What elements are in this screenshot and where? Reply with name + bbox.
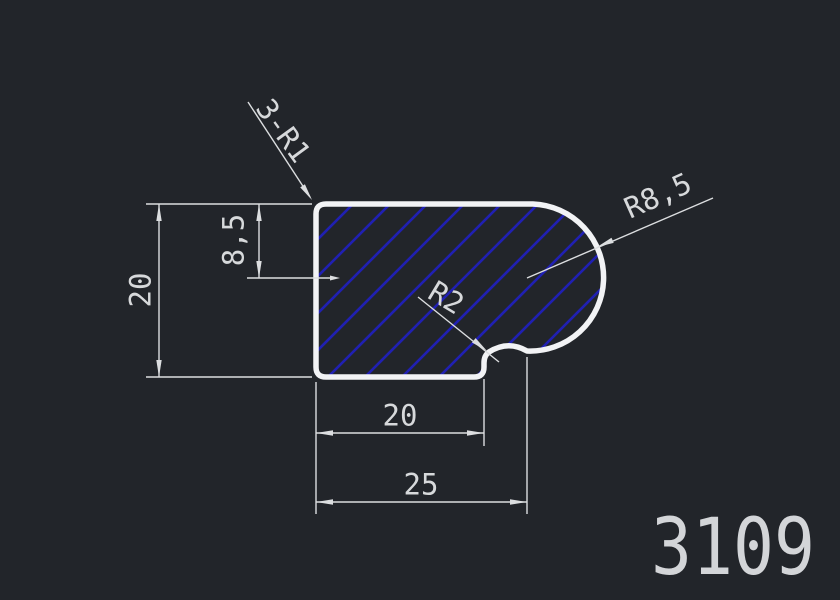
dimension-arrow (156, 204, 161, 221)
dimension-arrow (156, 360, 161, 377)
dimension-arrow (330, 276, 340, 281)
dimension-arrow (597, 238, 614, 247)
height-dim-label: 20 (124, 273, 158, 308)
drawing-svg: 20 8,5 3-R1 R8,5 R2 20 25 3109 (0, 0, 840, 600)
top-offset-dim-label: 8,5 (217, 214, 251, 266)
dimension-arrow (510, 499, 527, 504)
section-hatch (125, 190, 700, 395)
dimension-arrow (256, 204, 261, 221)
dimension-arrow (316, 499, 333, 504)
hatch-line (236, 190, 441, 395)
dimension-lines (146, 102, 713, 514)
cad-canvas: 20 8,5 3-R1 R8,5 R2 20 25 3109 (0, 0, 840, 600)
dimension-arrow (467, 430, 484, 435)
dimension-arrow (300, 184, 312, 200)
hatch-line (495, 190, 700, 395)
fillets-label: 3-R1 (249, 93, 318, 169)
dimension-arrow (256, 261, 261, 278)
part-number: 3109 (651, 503, 815, 593)
flat-width-dim-label: 20 (383, 399, 418, 433)
main-radius-label: R8,5 (619, 166, 697, 225)
dimension-arrow (472, 338, 487, 351)
total-width-dim-label: 25 (404, 468, 439, 502)
dimension-arrow (316, 430, 333, 435)
hatch-line (162, 190, 367, 395)
